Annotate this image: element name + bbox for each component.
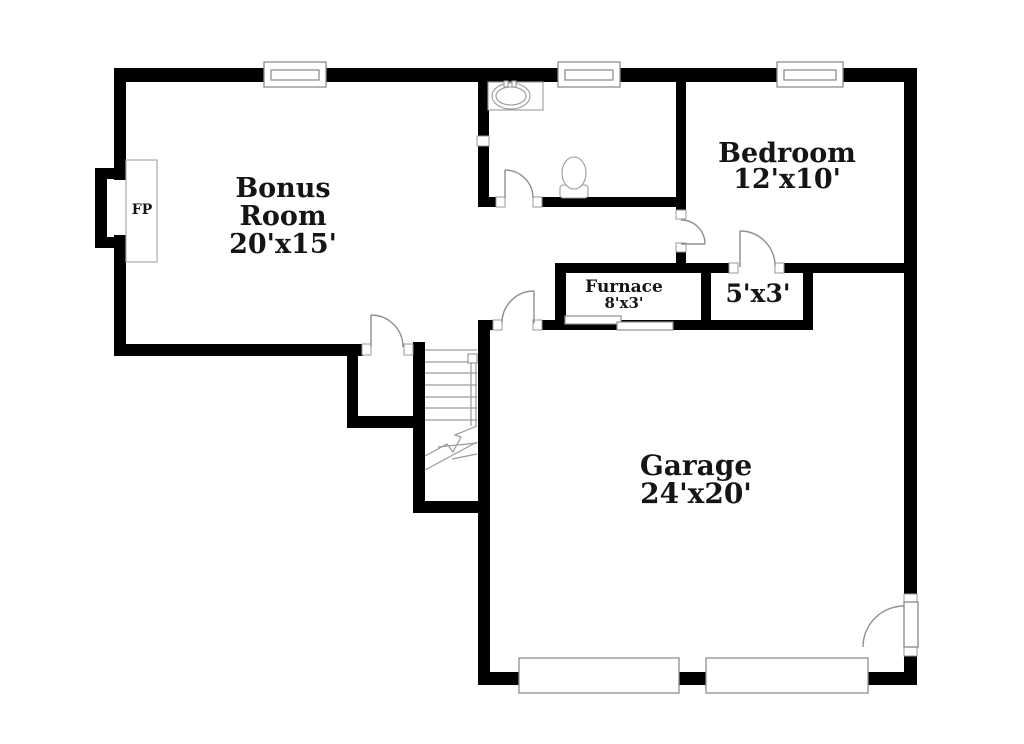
- jamb: [404, 344, 413, 355]
- door-bonus-room: [371, 315, 403, 347]
- floor-plan: Bonus Room 20'x15' Bedroom 12'x10' Garag…: [0, 0, 1024, 744]
- exterior-wall-left-upper: [114, 68, 126, 180]
- window-bathroom: [558, 62, 620, 87]
- sink-icon: [488, 81, 543, 110]
- fireplace-bump-wall: [95, 168, 107, 248]
- room-label-furnace: Furnace 8'x3': [544, 279, 704, 311]
- jamb: [362, 344, 371, 355]
- stairs-icon: [425, 350, 477, 470]
- wall-notch: [477, 136, 489, 146]
- door-closet: [740, 231, 775, 267]
- room-label-garage: Garage 24'x20': [566, 452, 826, 508]
- door-garage-exterior: [863, 602, 918, 647]
- stair-break-line: [425, 426, 477, 456]
- bedroom-bottom-wall-right: [775, 263, 917, 273]
- window-bonus-room: [264, 62, 326, 87]
- stairwell-left-wall: [413, 342, 425, 513]
- fireplace-bump-wall-top: [95, 168, 126, 179]
- jamb: [775, 263, 784, 273]
- jamb: [676, 210, 686, 219]
- bonus-room-bottom-wall: [114, 344, 363, 356]
- room-label-bonus: Bonus Room 20'x15': [217, 175, 349, 259]
- fireplace-abbreviation: FP: [132, 202, 152, 218]
- bathroom-fixtures: [488, 81, 588, 198]
- jamb: [904, 647, 917, 656]
- room-label-bedroom: Bedroom 12'x10': [657, 141, 917, 193]
- garage-left-wall: [478, 320, 490, 685]
- vestibule-left-wall: [347, 344, 358, 428]
- door-bedroom: [681, 220, 705, 244]
- stair-newel: [468, 354, 477, 363]
- closet-dimensions: 5'x3': [725, 279, 790, 308]
- fireplace-bump-wall-bottom: [95, 237, 126, 248]
- toilet-icon: [560, 157, 588, 198]
- bonus-room-dimensions: 20'x15': [217, 231, 349, 259]
- bonus-room-name: Bonus Room: [235, 173, 330, 232]
- jamb: [533, 197, 542, 207]
- door-jambs: [362, 136, 917, 656]
- window-bedroom: [777, 62, 843, 87]
- exterior-wall-left-lower: [114, 235, 126, 356]
- bedroom-dimensions: 12'x10': [657, 167, 917, 193]
- room-label-closet: 5'x3': [698, 281, 818, 307]
- furnace-dimensions: 8'x3': [544, 295, 704, 311]
- door-garage-hall: [502, 291, 534, 323]
- fireplace-label: FP: [112, 203, 172, 218]
- door-bathroom: [505, 170, 533, 198]
- jamb: [493, 320, 502, 330]
- bathroom-bottom-wall-right: [533, 197, 683, 207]
- floor-plan-drawing: [0, 0, 1024, 744]
- jamb: [496, 197, 505, 207]
- garage-door-panel-left: [519, 658, 679, 693]
- garage-door-panel-right: [706, 658, 868, 693]
- garage-dimensions: 24'x20': [566, 480, 826, 508]
- jamb: [729, 263, 738, 273]
